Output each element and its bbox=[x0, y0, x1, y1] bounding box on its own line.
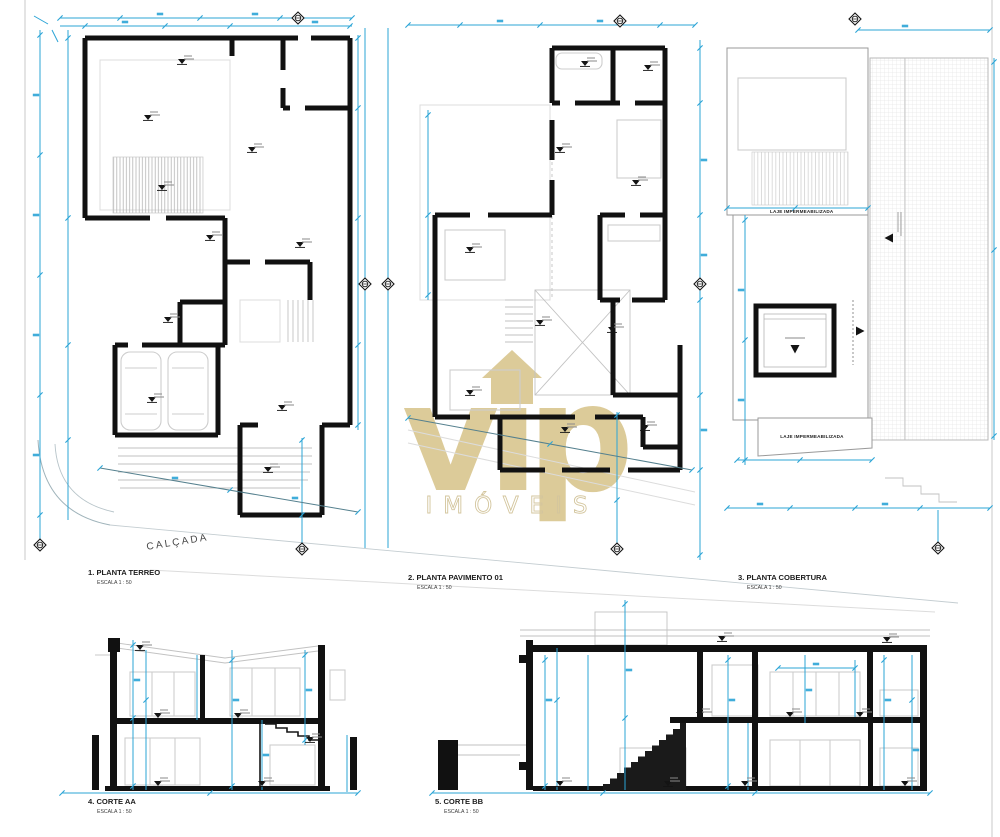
roof-label: LAJE IMPERMEABILIZADA bbox=[770, 209, 834, 214]
blueprint-canvas: vip IMÓVEIS bbox=[0, 0, 1000, 837]
slab-hatch bbox=[870, 58, 988, 440]
skylight-box bbox=[756, 306, 834, 375]
drawing-scale: ESCALA 1 : 50 bbox=[747, 585, 782, 591]
drawing-scale: ESCALA 1 : 50 bbox=[97, 809, 132, 815]
drawing-scale: ESCALA 1 : 50 bbox=[97, 580, 132, 586]
drawing-title: 5. CORTE BB bbox=[435, 797, 484, 806]
blueprint-sheet: vip IMÓVEIS bbox=[0, 0, 1000, 837]
drawing-title: 2. PLANTA PAVIMENTO 01 bbox=[408, 573, 504, 582]
drawing-scale: ESCALA 1 : 50 bbox=[444, 809, 479, 815]
drawing-scale: ESCALA 1 : 50 bbox=[417, 585, 452, 591]
pergola-hatch bbox=[752, 152, 848, 205]
watermark-subtitle: IMÓVEIS bbox=[426, 491, 599, 519]
roof-label: LAJE IMPERMEABILIZADA bbox=[780, 434, 844, 439]
drawing-title: 3. PLANTA COBERTURA bbox=[738, 573, 828, 582]
drawing-title: 1. PLANTA TERREO bbox=[88, 568, 160, 577]
drawing-title: 4. CORTE AA bbox=[88, 797, 136, 806]
gate-pillar bbox=[438, 740, 458, 790]
